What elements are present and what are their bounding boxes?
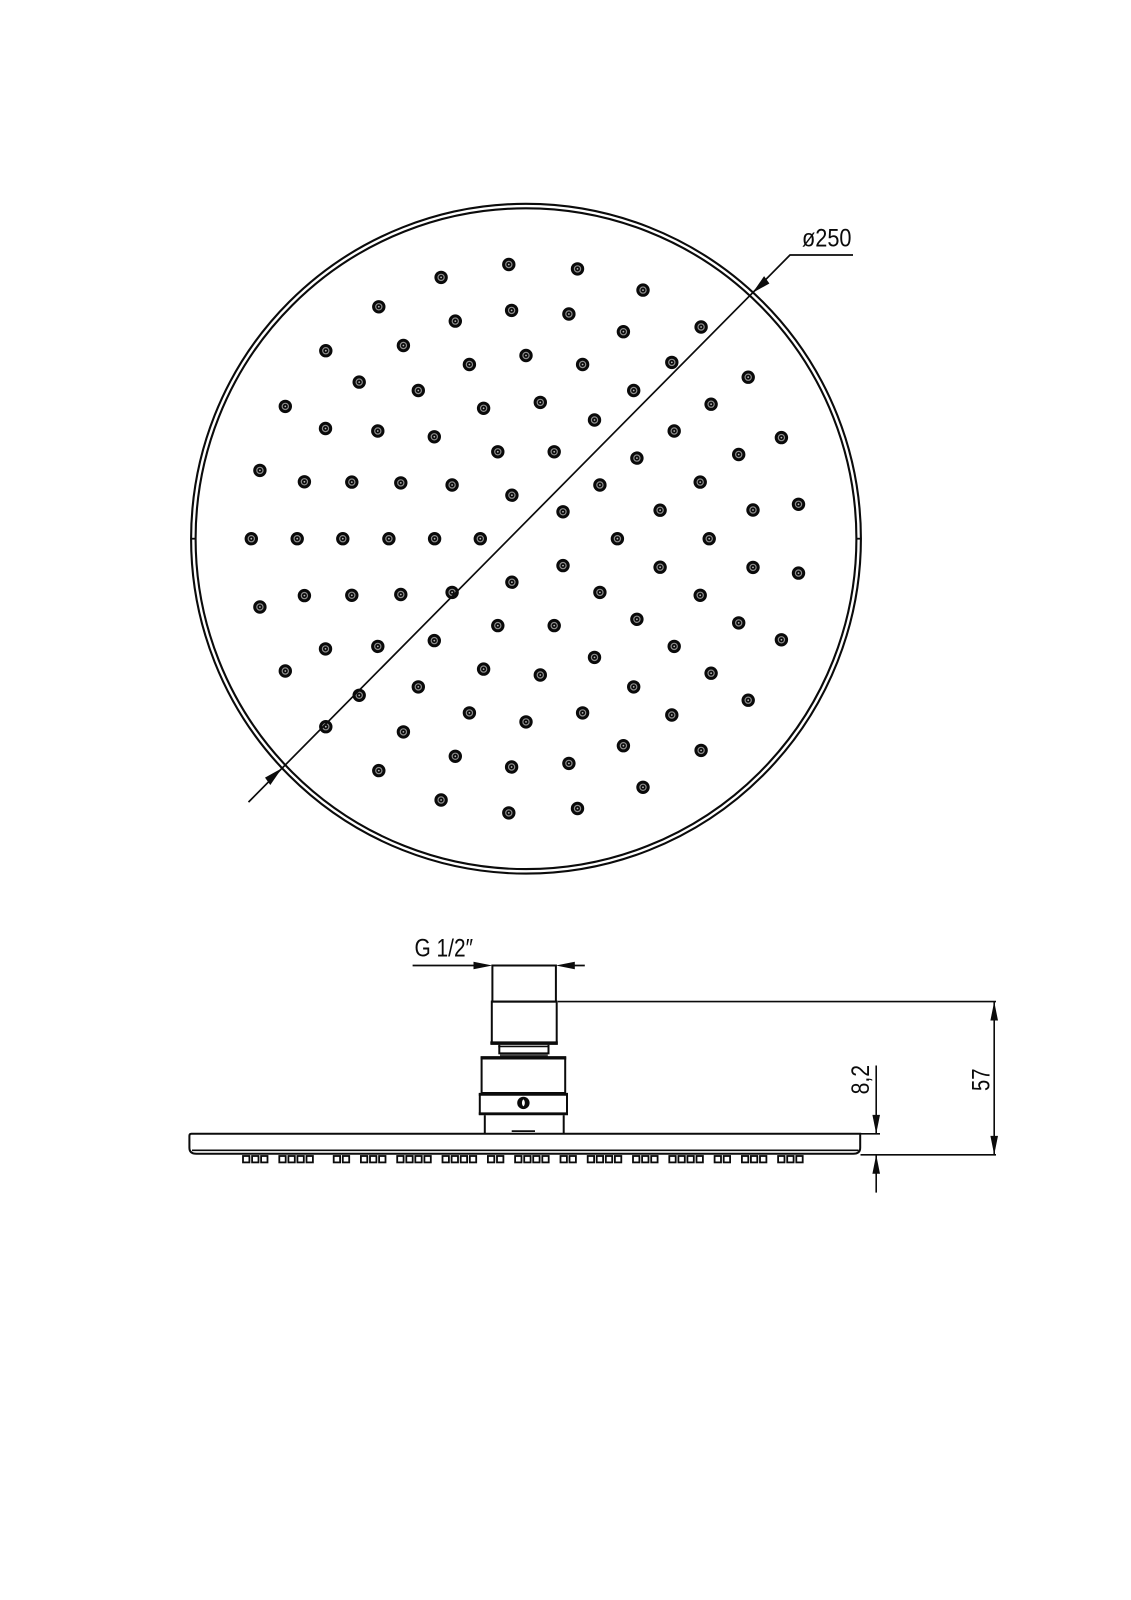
svg-text:8,2: 8,2 <box>847 1065 875 1095</box>
svg-text:ø250: ø250 <box>802 225 852 253</box>
svg-text:G 1/2″: G 1/2″ <box>415 935 474 963</box>
svg-text:57: 57 <box>968 1069 996 1092</box>
